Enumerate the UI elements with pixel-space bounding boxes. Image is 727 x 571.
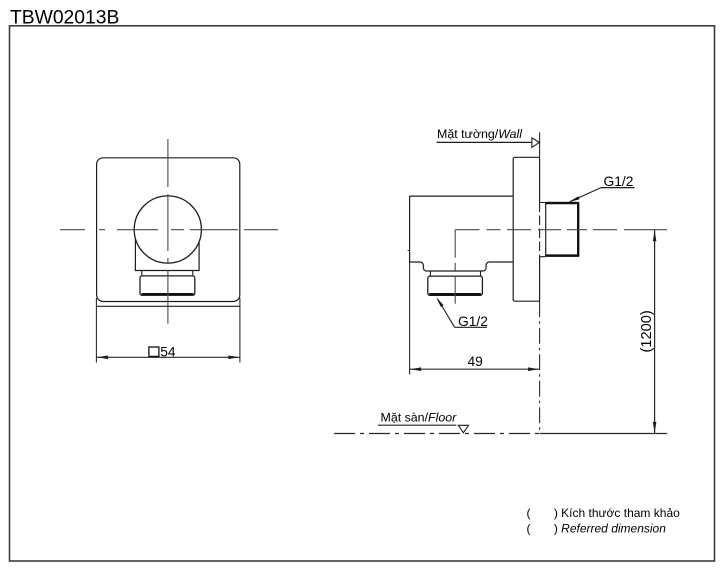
- svg-text:G1/2: G1/2: [458, 314, 488, 329]
- svg-text:Mặt tường/Wall: Mặt tường/Wall: [437, 127, 523, 141]
- svg-text:54: 54: [160, 345, 176, 360]
- svg-text:G1/2: G1/2: [604, 174, 634, 189]
- svg-text:( ) Referred dimension: ( ) Referred dimension: [527, 522, 667, 536]
- svg-text:( ) Kích thước tham khảo: ( ) Kích thước tham khảo: [527, 506, 681, 520]
- svg-text:(1200): (1200): [639, 310, 655, 352]
- svg-text:49: 49: [468, 354, 484, 369]
- svg-text:Mặt sàn/Floor: Mặt sàn/Floor: [381, 410, 458, 424]
